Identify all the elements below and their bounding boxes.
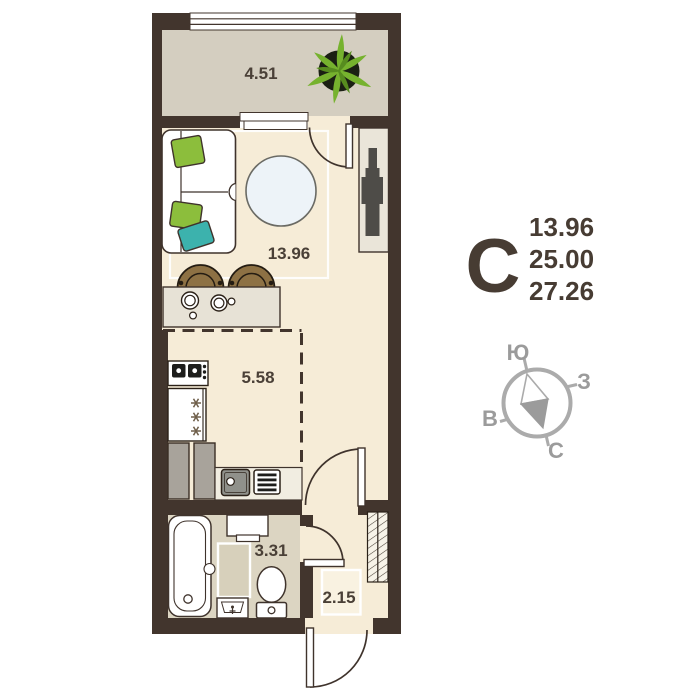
hallway-wardrobe xyxy=(368,512,389,582)
floor-plan-page: 4.51 13.96 5.58 3.31 2.15 С 13.96 25.00 … xyxy=(0,0,700,700)
legend-area-with-balcony: 27.26 xyxy=(529,276,594,306)
wall-bottom-right xyxy=(373,618,401,634)
legend-total-area: 25.00 xyxy=(529,244,594,274)
wall-balcony-divider-left xyxy=(162,116,240,128)
fridge xyxy=(168,389,206,442)
wall-bottom-left xyxy=(152,618,305,634)
legend-living-area: 13.96 xyxy=(529,212,594,242)
floor-plan-drawing: 4.51 13.96 5.58 3.31 2.15 С 13.96 25.00 … xyxy=(0,0,700,700)
compass-south-label: Ю xyxy=(507,340,530,365)
wall-right xyxy=(388,13,401,634)
door-leaf xyxy=(307,628,314,687)
tv-unit xyxy=(359,128,389,252)
stove xyxy=(168,361,208,386)
counter-sink-bowl-left xyxy=(182,292,199,309)
wall-left-lower xyxy=(152,330,168,634)
wall-bath-hall-lower xyxy=(300,562,313,618)
door-leaf xyxy=(358,448,365,506)
bathroom-area-label: 3.31 xyxy=(254,541,287,560)
entrance-opening xyxy=(305,618,373,634)
living-area-label: 13.96 xyxy=(268,244,311,263)
pillow-green-top xyxy=(171,135,205,168)
balcony-area-label: 4.51 xyxy=(244,64,277,83)
wall-balcony-divider-right xyxy=(350,116,388,128)
compass-east-label: В xyxy=(482,406,498,431)
round-rug xyxy=(246,156,316,226)
wall-left-upper xyxy=(152,13,162,330)
dish-rack-icon xyxy=(254,470,280,494)
compass-north-label: С xyxy=(548,438,564,463)
drain-icon xyxy=(184,595,192,603)
door-leaf xyxy=(346,124,353,168)
door-leaf xyxy=(304,560,344,567)
tub-mixer-icon xyxy=(204,564,215,575)
hallway-area-label: 2.15 xyxy=(322,588,355,607)
legend: С 13.96 25.00 27.26 xyxy=(466,212,595,309)
bath-rug xyxy=(218,544,250,598)
compass-icon: Ю З В С xyxy=(482,340,591,463)
kitchen-sink xyxy=(222,470,250,496)
balcony-exterior-window xyxy=(190,13,356,30)
living-balcony-window xyxy=(240,113,308,130)
compass-west-label: З xyxy=(577,369,591,394)
kitchen-counter xyxy=(215,468,302,501)
counter-sink-bowl-right xyxy=(211,295,227,311)
bar-counter xyxy=(163,287,280,327)
toilet xyxy=(257,567,287,618)
balcony-door-opening xyxy=(308,116,350,130)
kitchen-area-label: 5.58 xyxy=(241,368,274,387)
bathroom-sink xyxy=(217,598,248,618)
entrance-door xyxy=(307,628,368,687)
wall-bath-hall-upper xyxy=(300,515,313,526)
apartment-type-letter: С xyxy=(466,224,521,309)
bathtub xyxy=(169,516,216,617)
wall-kitchen-bath-left xyxy=(162,500,302,515)
